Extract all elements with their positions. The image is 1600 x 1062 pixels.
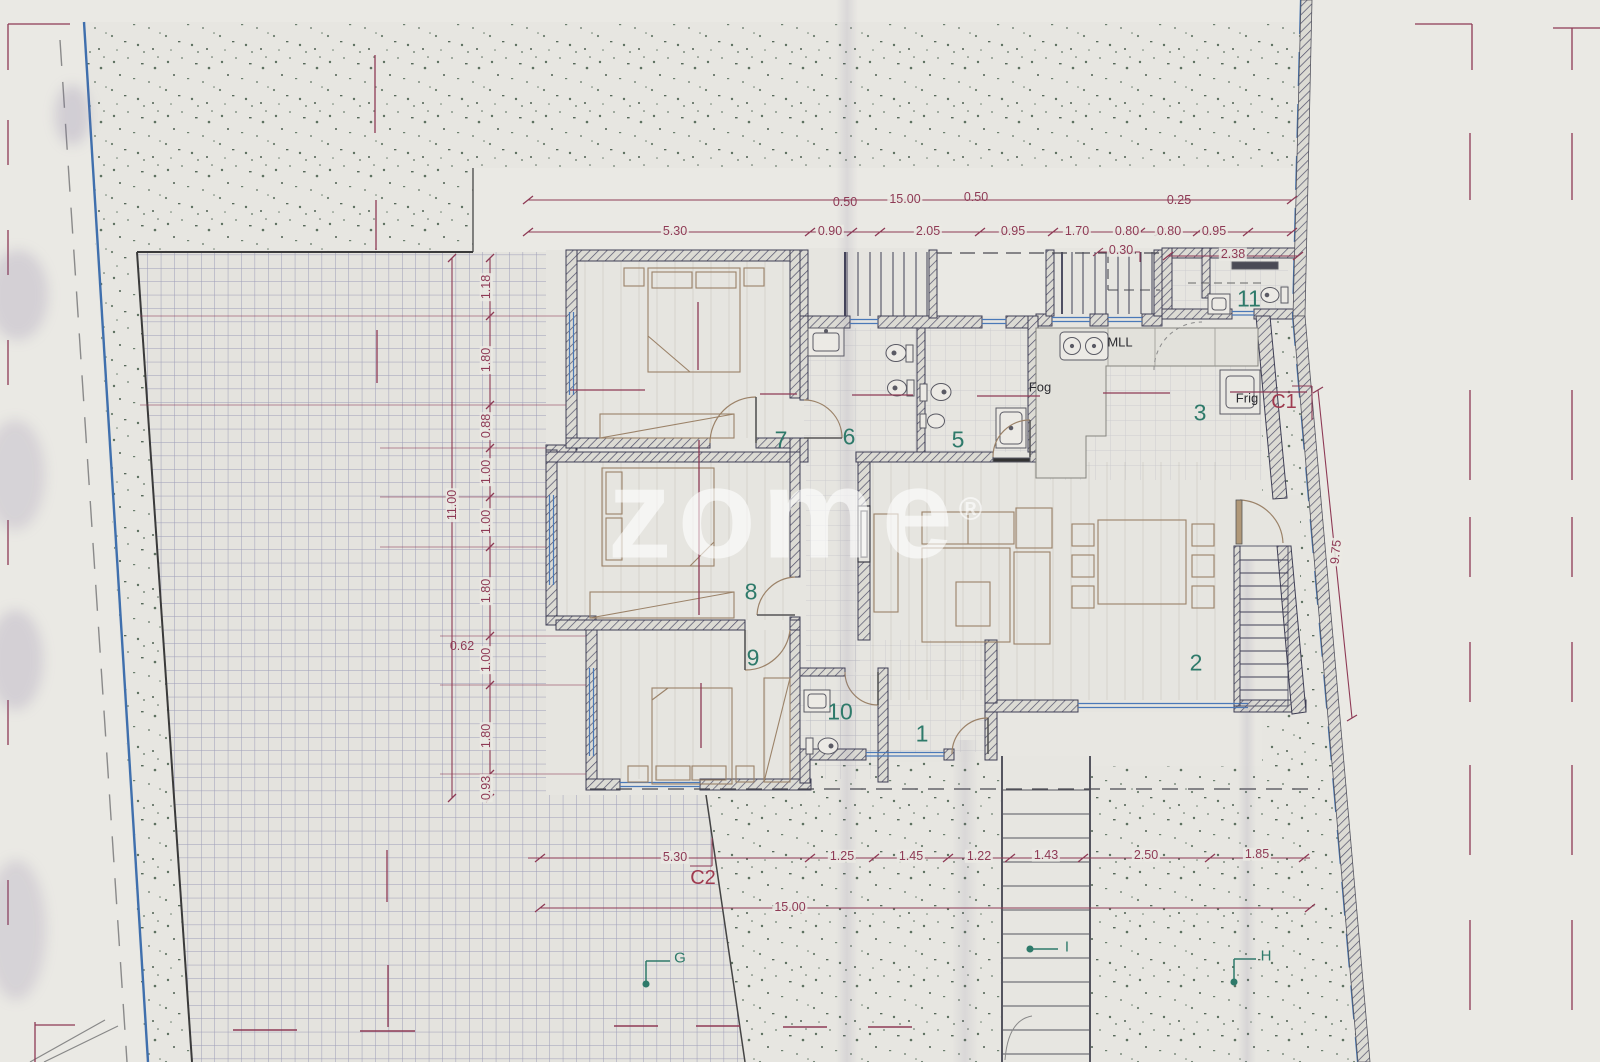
dim-top-seg: 0.90 — [816, 225, 844, 238]
dim-bottom-seg: 1.85 — [1243, 848, 1271, 861]
dim-top-seg: 1.70 — [1063, 225, 1091, 238]
dim-left-aside: 0.62 — [448, 640, 476, 653]
point-marker-i: I — [1065, 940, 1069, 955]
dim-top-seg: 0.95 — [1200, 225, 1228, 238]
dim-top-above: 0.25 — [1165, 194, 1193, 207]
bath5-shower-icon — [996, 408, 1026, 448]
dim-left-seg: 1.80 — [480, 722, 493, 750]
bath5-toilet-icon — [920, 384, 951, 402]
dim-bottom-seg: 1.22 — [965, 850, 993, 863]
exterior-steps-south — [1002, 756, 1090, 1062]
floor-plan-scan: 15.00 5.30 0.90 2.05 0.95 1.70 0.80 0.80… — [0, 0, 1600, 1062]
label-fridge: Frig — [1236, 392, 1258, 405]
dim-top-above: 0.50 — [962, 191, 990, 204]
dim-top-seg: 0.80 — [1155, 225, 1183, 238]
dim-left-seg: 1.00 — [480, 508, 493, 536]
dim-bottom-seg: 1.25 — [828, 850, 856, 863]
wc11-toilet-icon — [1261, 287, 1288, 303]
dim-top-seg: 0.95 — [999, 225, 1027, 238]
dim-top-seg: 2.05 — [914, 225, 942, 238]
dim-left-seg: 1.80 — [480, 577, 493, 605]
room-number-9: 9 — [747, 647, 760, 670]
dim-left-seg: 1.80 — [480, 346, 493, 374]
dim-left-seg: 1.18 — [480, 273, 493, 301]
bath6-bidet-icon — [888, 380, 915, 396]
room-number-1: 1 — [916, 723, 929, 746]
dim-bottom-overall: 15.00 — [772, 901, 807, 914]
dim-offset: 0.30 — [1107, 244, 1135, 257]
dim-top-above: 0.50 — [831, 196, 859, 209]
dim-left-seg: 1.00 — [480, 646, 493, 674]
dim-left-seg: 0.93 — [480, 774, 493, 802]
bath6-sink-icon — [808, 328, 844, 356]
wc11-shelf — [1232, 262, 1278, 269]
wc11-sink-icon — [1208, 294, 1230, 314]
zome-watermark: zome® — [608, 441, 983, 588]
section-marker-c1: C1 — [1271, 392, 1297, 412]
room-number-2: 2 — [1190, 652, 1203, 675]
dim-left-seg: 1.00 — [480, 458, 493, 486]
dim-top-seg: 0.80 — [1113, 225, 1141, 238]
point-marker-h: H — [1261, 949, 1272, 964]
bath6-toilet-icon — [886, 345, 913, 363]
dim-left-seg: 0.88 — [480, 412, 493, 440]
label-washing-machine: MLL — [1107, 336, 1132, 349]
room-number-10: 10 — [827, 701, 853, 724]
room-number-11: 11 — [1237, 288, 1261, 311]
dim-top-seg: 5.30 — [661, 225, 689, 238]
dim-right-length: 9.75 — [1328, 537, 1343, 566]
dim-bottom-seg: 2.50 — [1132, 849, 1160, 862]
section-marker-c2: C2 — [690, 868, 716, 888]
kitchen-sink-icon — [1060, 332, 1108, 360]
point-marker-g: G — [674, 951, 686, 966]
bath5-bidet-icon — [920, 414, 945, 428]
dim-offset: 2.38 — [1219, 248, 1247, 261]
watermark-text: zome — [608, 443, 959, 586]
dim-bottom-seg: 1.43 — [1032, 849, 1060, 862]
bath10-toilet-icon — [806, 738, 838, 754]
corner-marks-gray — [30, 1020, 118, 1062]
dim-top-overall: 15.00 — [887, 193, 922, 206]
bath10-sink-icon — [804, 690, 830, 712]
dim-left-overall: 11.00 — [446, 488, 459, 522]
dim-bottom-seg: 1.45 — [897, 850, 925, 863]
bath5-threshold — [993, 458, 1030, 462]
room-number-3: 3 — [1194, 402, 1207, 425]
east-door-leaf — [1236, 500, 1242, 544]
dim-bottom-seg: 5.30 — [661, 851, 689, 864]
registered-icon: ® — [959, 491, 983, 527]
label-stove: Fog — [1029, 381, 1051, 394]
